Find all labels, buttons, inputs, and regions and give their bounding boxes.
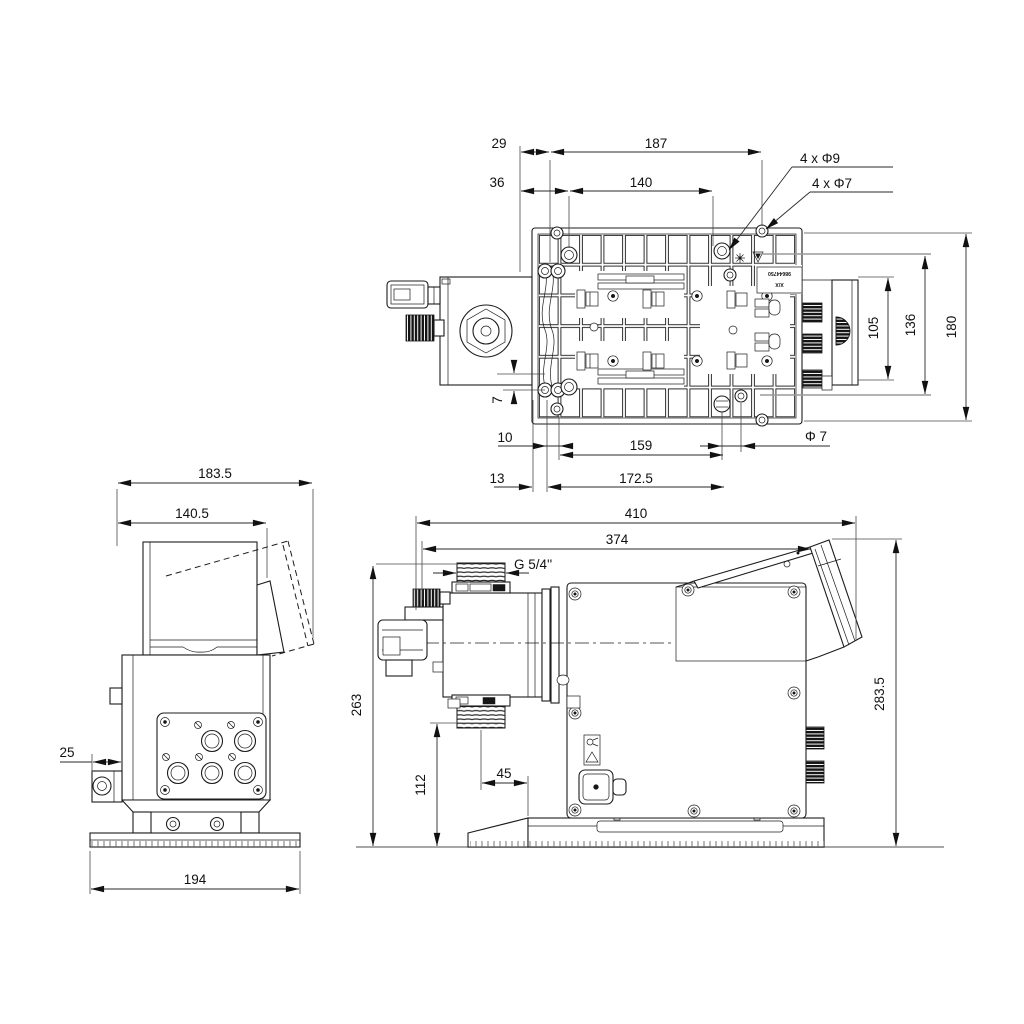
- svg-text:13: 13: [489, 471, 504, 486]
- dim-45: 45: [482, 766, 527, 783]
- svg-text:263: 263: [349, 694, 364, 717]
- technical-drawing-page: X/X 98644750: [0, 0, 1024, 1024]
- part-number-label: X/X 98644750: [757, 267, 802, 293]
- dim-112: 112: [413, 724, 437, 846]
- dim-140: 140: [570, 175, 712, 191]
- svg-text:45: 45: [496, 766, 511, 781]
- top-cable-gland: [387, 281, 444, 341]
- dim-105: 105: [866, 278, 888, 379]
- discharge-thread: [452, 563, 510, 593]
- pump-dimensional-drawing: X/X 98644750: [0, 0, 1024, 1024]
- svg-text:159: 159: [630, 438, 653, 453]
- svg-text:4 x Φ7: 4 x Φ7: [812, 176, 852, 191]
- svg-text:Φ 7: Φ 7: [805, 429, 827, 444]
- dim-283-5: 283.5: [872, 540, 896, 846]
- svg-text:410: 410: [625, 506, 648, 521]
- svg-text:105: 105: [866, 317, 881, 340]
- top-view: X/X 98644750: [387, 136, 972, 492]
- top-motor-end: [802, 280, 858, 390]
- svg-text:283.5: 283.5: [872, 677, 887, 711]
- label-part-number: 98644750: [768, 270, 791, 276]
- dim-263: 263: [349, 566, 373, 846]
- svg-text:140: 140: [630, 175, 653, 190]
- dim-194: 194: [91, 872, 299, 889]
- dim-187: 187: [551, 136, 761, 152]
- dim-13: 13: [489, 471, 561, 487]
- wall-bracket: [92, 771, 122, 802]
- top-gearbox: [440, 277, 532, 385]
- side-base-plate: [90, 833, 300, 847]
- svg-text:10: 10: [497, 430, 512, 445]
- svg-text:4 x Φ9: 4 x Φ9: [800, 151, 840, 166]
- dim-25: 25: [59, 745, 121, 762]
- label-variant: X/X: [775, 281, 784, 287]
- svg-text:194: 194: [184, 872, 207, 887]
- svg-text:374: 374: [606, 532, 629, 547]
- svg-text:172.5: 172.5: [619, 471, 653, 486]
- svg-text:29: 29: [491, 136, 506, 151]
- side-control-box: [143, 542, 284, 655]
- svg-text:36: 36: [489, 175, 504, 190]
- dim-183-5: 183.5: [118, 466, 312, 483]
- callout-4x-dia7: 4 x Φ7: [766, 176, 893, 229]
- svg-text:140.5: 140.5: [175, 506, 209, 521]
- svg-text:187: 187: [645, 136, 668, 151]
- svg-text:183.5: 183.5: [198, 466, 232, 481]
- dim-159: 159: [560, 438, 723, 455]
- mounting-plate: X/X 98644750: [532, 225, 802, 426]
- svg-text:180: 180: [944, 316, 959, 339]
- snowflake-icon: [735, 253, 745, 263]
- dim-36: 36: [489, 175, 568, 191]
- pump-housing: [567, 583, 824, 818]
- svg-text:25: 25: [59, 745, 74, 760]
- front-side-view: 410 374 G 5/4'' 263 283.5: [349, 506, 944, 847]
- connector-panel: [157, 713, 266, 799]
- dim-10: 10: [497, 430, 573, 446]
- svg-text:G 5/4'': G 5/4'': [514, 557, 552, 572]
- dim-dia7: Φ 7: [700, 429, 830, 446]
- left-side-view: 183.5 140.5 25 194: [59, 466, 314, 894]
- svg-text:7: 7: [490, 396, 505, 404]
- dim-140-5: 140.5: [118, 506, 266, 523]
- svg-text:136: 136: [903, 314, 918, 337]
- dim-374: 374: [423, 532, 811, 549]
- dim-180: 180: [944, 234, 966, 420]
- dim-136: 136: [903, 256, 925, 394]
- dim-172-5: 172.5: [548, 471, 724, 487]
- side-connectors: [806, 727, 824, 783]
- gland-nut-icon: [406, 315, 434, 341]
- warning-label-icon: [584, 735, 600, 765]
- dim-410: 410: [417, 506, 855, 523]
- svg-text:112: 112: [413, 774, 428, 796]
